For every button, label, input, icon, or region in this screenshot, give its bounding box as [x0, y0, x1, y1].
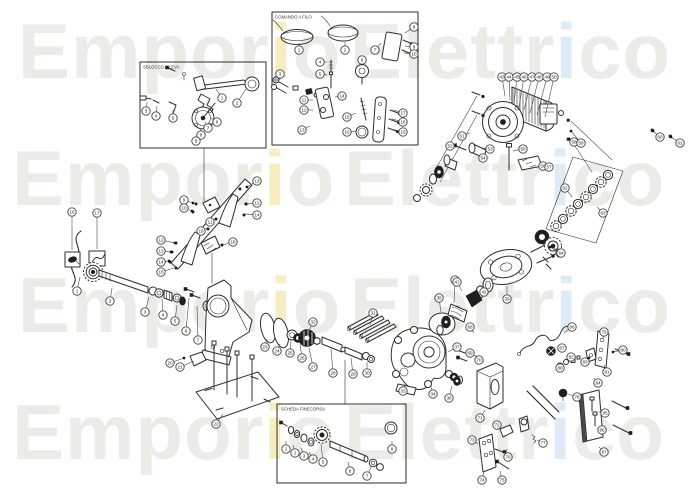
svg-text:4: 4 [319, 60, 322, 65]
part-callout: 11 [300, 96, 313, 104]
svg-text:37: 37 [454, 345, 460, 350]
part-callout: 4 [152, 106, 160, 120]
svg-text:61: 61 [677, 141, 683, 146]
bolt-pair-left [454, 348, 468, 386]
svg-text:47: 47 [529, 75, 535, 80]
svg-text:23: 23 [262, 345, 268, 350]
svg-text:50: 50 [551, 75, 557, 80]
svg-text:3: 3 [144, 310, 147, 315]
exploded-diagram: EmporioElettricoEmporioElettricoEmporioE… [0, 0, 694, 500]
part-callout: 84 [594, 378, 602, 387]
svg-text:14: 14 [158, 260, 164, 265]
svg-text:9: 9 [183, 198, 186, 203]
svg-text:14: 14 [254, 213, 260, 218]
part-callout: 2 [341, 42, 349, 54]
part-callout: 6 [211, 118, 221, 126]
svg-text:54: 54 [480, 156, 486, 161]
inset-comando-label: COMANDO A FILO [275, 15, 312, 20]
svg-text:32: 32 [310, 320, 316, 325]
svg-text:49: 49 [544, 75, 550, 80]
svg-text:7: 7 [366, 474, 369, 479]
svg-text:73: 73 [469, 438, 475, 443]
svg-text:3: 3 [145, 109, 148, 114]
svg-text:77: 77 [540, 441, 546, 446]
svg-text:15: 15 [344, 115, 350, 120]
part-callout: 83 [581, 357, 590, 366]
svg-text:1: 1 [298, 48, 301, 53]
part-callout: 87 [599, 447, 608, 456]
svg-text:69: 69 [467, 351, 473, 356]
part-callout: 17 [393, 109, 407, 117]
svg-text:59: 59 [578, 141, 584, 146]
svg-text:2: 2 [236, 101, 239, 106]
svg-text:20: 20 [167, 361, 173, 366]
svg-text:11: 11 [302, 98, 307, 103]
watermark-text: Elettrico [344, 134, 665, 222]
svg-text:7: 7 [207, 126, 210, 131]
svg-text:66: 66 [569, 325, 575, 330]
watermark: EmporioElettricoEmporioElettricoEmporioE… [12, 7, 671, 476]
svg-text:71: 71 [477, 416, 483, 421]
svg-text:25: 25 [287, 351, 293, 356]
svg-text:12: 12 [301, 108, 307, 113]
svg-text:9: 9 [413, 45, 416, 50]
part-callout: 28 [329, 349, 337, 377]
part-callout: 18 [223, 238, 237, 246]
svg-text:57: 57 [546, 165, 552, 170]
svg-text:4: 4 [162, 313, 165, 318]
svg-text:1: 1 [285, 447, 288, 452]
part-callout: 18 [392, 118, 407, 126]
svg-text:83: 83 [582, 360, 588, 365]
part-callout: 12 [300, 106, 313, 114]
svg-text:62: 62 [562, 186, 568, 191]
svg-text:10: 10 [411, 52, 417, 57]
svg-text:14: 14 [339, 94, 345, 99]
svg-text:4: 4 [155, 114, 158, 119]
svg-text:13: 13 [299, 128, 305, 133]
svg-text:35: 35 [436, 296, 442, 301]
watermark-text: Emporio [12, 134, 335, 222]
svg-text:88: 88 [557, 366, 563, 371]
svg-text:3: 3 [279, 72, 282, 77]
svg-text:18: 18 [400, 120, 406, 125]
svg-text:8: 8 [200, 133, 203, 138]
part-callout: 21 [176, 361, 194, 371]
svg-text:16: 16 [69, 210, 75, 215]
svg-text:45: 45 [514, 75, 520, 80]
svg-text:5: 5 [319, 72, 322, 77]
svg-text:3: 3 [303, 454, 306, 459]
svg-text:80: 80 [620, 348, 626, 353]
svg-text:17: 17 [94, 211, 100, 216]
part-callout: 17 [93, 209, 101, 249]
svg-text:19: 19 [198, 229, 204, 234]
svg-text:68: 68 [467, 325, 473, 330]
svg-text:52: 52 [447, 144, 453, 149]
svg-text:39: 39 [504, 297, 510, 302]
svg-text:7: 7 [197, 338, 200, 343]
svg-text:19: 19 [400, 130, 406, 135]
part-callout: 16 [68, 208, 76, 250]
svg-text:86: 86 [599, 428, 605, 433]
svg-text:28: 28 [330, 371, 336, 376]
svg-text:7: 7 [374, 48, 377, 53]
svg-text:74: 74 [479, 478, 485, 483]
svg-text:1: 1 [76, 289, 79, 294]
svg-text:81: 81 [604, 370, 610, 375]
svg-text:70: 70 [476, 358, 482, 363]
svg-text:2: 2 [109, 299, 112, 304]
part-callout: 13 [157, 247, 172, 255]
svg-text:6: 6 [185, 329, 188, 334]
part-callout: 3 [142, 102, 150, 115]
svg-text:44: 44 [506, 75, 512, 80]
svg-text:9: 9 [195, 139, 198, 144]
watermark-text: Emporio [18, 7, 341, 95]
part-callout: 13 [298, 126, 310, 134]
part-callout: 70 [475, 356, 484, 364]
svg-text:31: 31 [370, 311, 376, 316]
svg-text:26: 26 [299, 356, 305, 361]
svg-text:51: 51 [459, 134, 465, 139]
svg-text:75: 75 [499, 478, 505, 483]
svg-text:67: 67 [559, 346, 565, 351]
svg-text:85: 85 [602, 411, 608, 416]
part-callout: 5 [169, 110, 177, 122]
svg-text:63: 63 [600, 211, 606, 216]
svg-text:30: 30 [364, 371, 370, 376]
svg-text:11: 11 [208, 220, 213, 225]
svg-text:46: 46 [521, 75, 527, 80]
svg-text:38: 38 [446, 396, 452, 401]
svg-text:13: 13 [254, 179, 260, 184]
part-callout: 57 [545, 163, 553, 171]
svg-text:41: 41 [454, 280, 460, 285]
exploded-parts-diagram-page: EmporioElettricoEmporioElettricoEmporioE… [0, 0, 694, 500]
svg-text:53: 53 [487, 147, 493, 152]
svg-text:10: 10 [181, 206, 187, 211]
svg-text:17: 17 [400, 111, 406, 116]
part-callout: 61 [670, 136, 684, 147]
grease-pack-box [65, 252, 80, 267]
svg-text:82: 82 [568, 355, 574, 360]
svg-text:58: 58 [571, 140, 577, 145]
part-callout: 72 [493, 421, 501, 429]
svg-text:87: 87 [601, 450, 607, 455]
svg-text:84: 84 [595, 381, 601, 386]
svg-text:76: 76 [505, 455, 511, 460]
svg-text:18: 18 [230, 240, 236, 245]
svg-text:34: 34 [430, 392, 436, 397]
svg-text:33: 33 [400, 389, 406, 394]
svg-text:22: 22 [213, 422, 219, 427]
svg-text:13: 13 [158, 249, 164, 254]
svg-text:2: 2 [294, 451, 297, 456]
part-callout: 30 [363, 362, 371, 377]
svg-text:27: 27 [310, 365, 316, 370]
svg-text:79: 79 [601, 330, 607, 335]
svg-text:24: 24 [274, 349, 280, 354]
svg-text:1: 1 [221, 96, 224, 101]
svg-text:12: 12 [158, 238, 164, 243]
svg-text:29: 29 [350, 372, 356, 377]
part-callout: 29 [349, 358, 357, 378]
inset-finecorsa-label: SCHEDA FINECORSA [281, 407, 325, 412]
svg-text:42: 42 [481, 290, 487, 295]
svg-text:21: 21 [177, 365, 183, 370]
svg-text:48: 48 [536, 75, 542, 80]
svg-text:16: 16 [344, 130, 350, 135]
watermark-text: Emporio [12, 388, 335, 476]
svg-text:8: 8 [413, 25, 416, 30]
svg-text:5: 5 [322, 460, 325, 465]
part-callout: 27 [309, 348, 317, 371]
svg-text:6: 6 [361, 58, 364, 63]
svg-text:6: 6 [216, 120, 219, 125]
svg-text:72: 72 [494, 423, 500, 428]
svg-text:15: 15 [158, 270, 164, 275]
svg-text:78: 78 [574, 395, 580, 400]
svg-text:2: 2 [344, 48, 347, 53]
channel-bracket [477, 363, 503, 409]
svg-text:43: 43 [499, 75, 505, 80]
svg-text:4: 4 [312, 457, 315, 462]
svg-text:60: 60 [657, 135, 663, 140]
part-callout: 12 [157, 236, 176, 244]
svg-text:12: 12 [254, 201, 260, 206]
part-callout: 15 [343, 113, 356, 121]
svg-text:8: 8 [391, 447, 394, 452]
svg-text:64: 64 [558, 251, 564, 256]
svg-text:6: 6 [349, 469, 352, 474]
svg-text:5: 5 [172, 116, 175, 121]
svg-text:55: 55 [520, 147, 526, 152]
inset-sblocco-label: SBLOCCO A LEVA [143, 65, 180, 70]
part-callout: 88 [556, 364, 564, 372]
svg-text:5: 5 [174, 319, 177, 324]
